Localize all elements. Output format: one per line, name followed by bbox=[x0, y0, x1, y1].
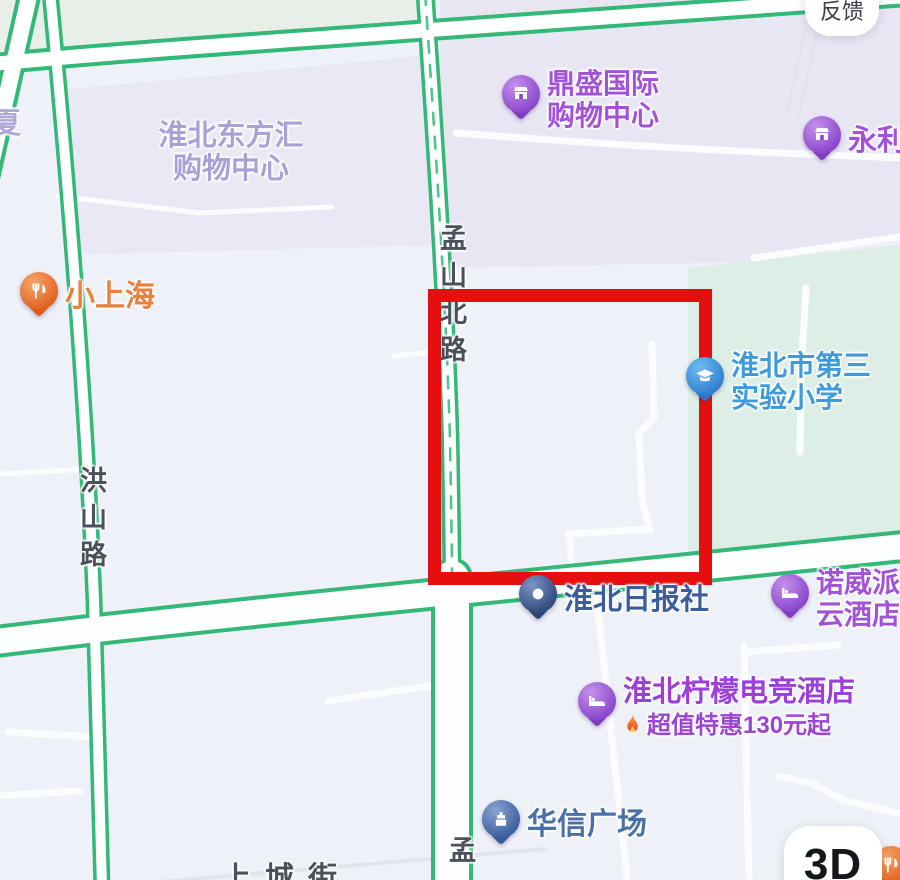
poi-label: 淮北东方汇 bbox=[118, 120, 344, 153]
poi-nuowei-hotel[interactable]: 诺威派柏 云酒店 bbox=[771, 567, 900, 630]
poi-label: 永利 bbox=[848, 125, 900, 158]
poi-label: 小上海 bbox=[65, 280, 155, 314]
poi-label: 淮北日报社 bbox=[564, 584, 709, 617]
3d-button-label: 3D bbox=[804, 840, 862, 880]
feedback-button-label: 反馈 bbox=[820, 0, 864, 26]
poi-label: 云酒店 bbox=[816, 599, 900, 631]
feedback-button[interactable]: 反馈 bbox=[805, 0, 879, 36]
highlight-rectangle bbox=[428, 289, 712, 585]
hotel-pin-icon bbox=[771, 574, 809, 624]
school-pin-icon bbox=[686, 357, 724, 407]
poi-promo-label: 超值特惠130元起 bbox=[647, 712, 831, 739]
shopping-mall-pin-icon bbox=[803, 116, 841, 166]
building-pin-icon bbox=[482, 800, 520, 850]
poi-huaibei-daily[interactable]: 淮北日报社 bbox=[519, 575, 709, 625]
road-label-meng: 孟 bbox=[441, 836, 480, 873]
poi-xiaoshanghai[interactable]: 小上海 bbox=[20, 272, 155, 322]
road-label-hongshanlu: 洪山路 bbox=[72, 466, 111, 577]
map-canvas[interactable]: 孟山北路 洪山路 孟 上城街 夏 鼎盛国际 购物中心 永利 淮北东方汇 购物中心 bbox=[0, 0, 900, 880]
poi-label: 鼎盛国际 bbox=[547, 68, 659, 100]
landmark-pin-icon bbox=[519, 575, 557, 625]
poi-label: 实验小学 bbox=[731, 382, 871, 414]
poi-label: 淮北柠檬电竞酒店 bbox=[623, 676, 855, 709]
hotel-pin-icon bbox=[578, 682, 616, 732]
poi-label: 购物中心 bbox=[118, 153, 344, 186]
poi-huaxin-plaza[interactable]: 华信广场 bbox=[482, 800, 647, 850]
shopping-mall-pin-icon bbox=[502, 75, 540, 125]
poi-ningmeng-esports-hotel[interactable]: 淮北柠檬电竞酒店 超值特惠130元起 bbox=[578, 676, 855, 739]
restaurant-pin-icon bbox=[20, 272, 58, 322]
poi-dingsheng-mall[interactable]: 鼎盛国际 购物中心 bbox=[502, 68, 659, 131]
clipped-poi-label-xia: 夏 bbox=[0, 100, 21, 142]
poi-label: 淮北市第三 bbox=[731, 350, 871, 382]
poi-yongli[interactable]: 永利 bbox=[803, 116, 900, 166]
poi-label: 华信广场 bbox=[527, 808, 647, 842]
poi-label: 诺威派柏 bbox=[816, 567, 900, 599]
3d-view-button[interactable]: 3D bbox=[784, 826, 882, 880]
poi-label: 购物中心 bbox=[547, 100, 659, 132]
poi-dongfanghui-mall[interactable]: 淮北东方汇 购物中心 bbox=[118, 120, 344, 186]
flame-icon bbox=[623, 714, 642, 737]
poi-third-experimental-school[interactable]: 淮北市第三 实验小学 bbox=[686, 350, 871, 413]
road-label-shangchengjie: 上城街 bbox=[222, 854, 351, 880]
